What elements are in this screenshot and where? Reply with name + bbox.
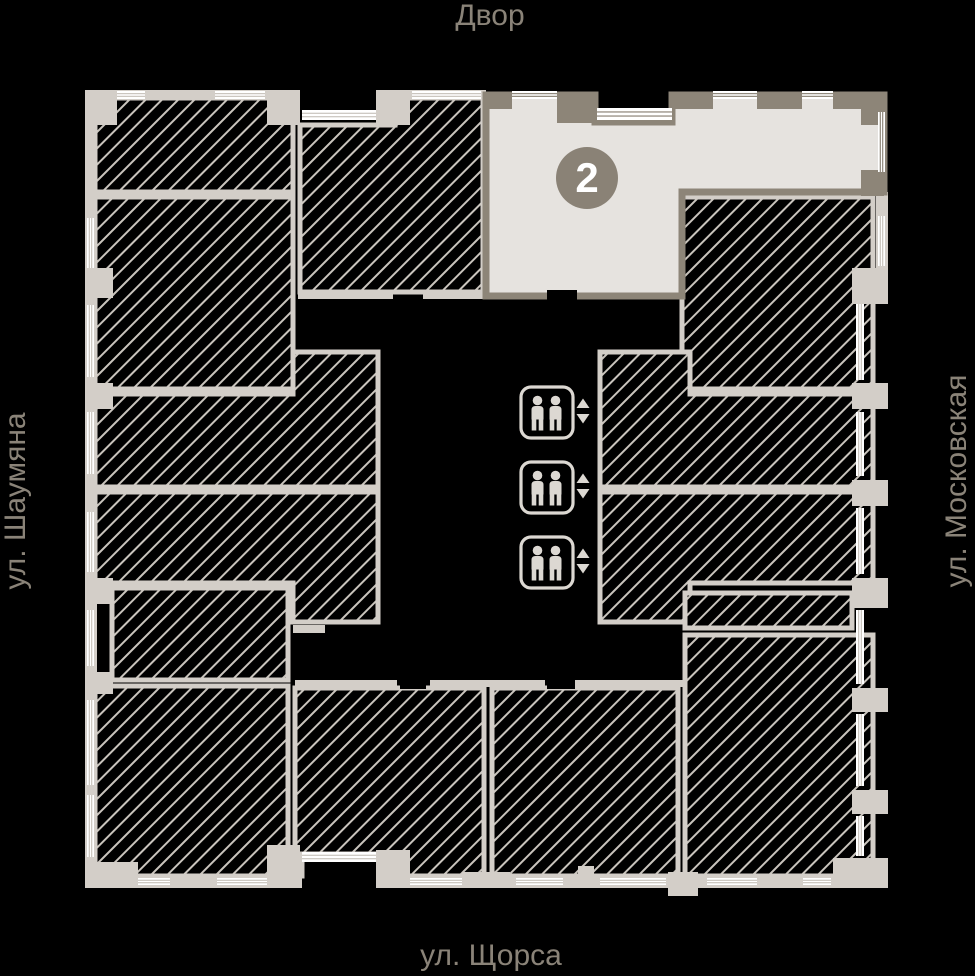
window-mullion [858, 816, 859, 856]
window [87, 218, 94, 268]
window-mullion [215, 96, 265, 97]
wall-pier [85, 90, 117, 125]
floor-plan-page: Двор ул. Шаумяна ул. Московская ул. Щорс… [0, 0, 975, 976]
arrow-down-icon [577, 564, 590, 574]
person-icon-leg [557, 568, 562, 581]
wall-pier [852, 578, 888, 608]
window-mullion [217, 880, 267, 881]
wall-pier [578, 866, 594, 888]
window [87, 305, 94, 377]
window-mullion [89, 512, 90, 572]
window-mullion [91, 795, 92, 857]
wall-pier [833, 858, 888, 888]
window-mullion [802, 93, 833, 94]
window [856, 816, 864, 856]
window-mullion [302, 113, 376, 114]
door-opening [400, 679, 426, 689]
elevator-icon [521, 387, 590, 438]
window [217, 878, 267, 885]
person-icon-head [551, 546, 561, 556]
inner-wall [423, 292, 485, 299]
window-mullion [880, 216, 881, 266]
person-icon-body [550, 481, 562, 495]
apartment-region[interactable] [682, 197, 873, 389]
apartment-region[interactable] [95, 686, 288, 876]
window-mullion [516, 882, 563, 883]
person-icon-body [532, 481, 544, 495]
selected-unit-wall-pier [557, 95, 597, 123]
window-mullion [412, 96, 481, 97]
person-icon-leg [532, 418, 537, 431]
floor-plan [0, 0, 975, 976]
elevator-icon [521, 537, 590, 588]
person-icon-body [550, 406, 562, 420]
door-opening [547, 679, 575, 689]
apartment-region[interactable] [492, 688, 678, 876]
window-mullion [880, 112, 881, 172]
window-mullion [597, 111, 672, 112]
arrow-up-icon [577, 399, 590, 409]
window-mullion [89, 610, 90, 666]
person-icon-leg [539, 568, 544, 581]
selected-unit-wall-pier [757, 95, 802, 109]
window-mullion [858, 412, 859, 476]
elevator-cab-outline [521, 387, 573, 438]
window [856, 412, 864, 476]
inner-wall [430, 680, 545, 687]
window-mullion [215, 93, 265, 94]
inner-wall [295, 680, 397, 687]
person-icon-head [533, 546, 543, 556]
window [512, 91, 557, 99]
elevator-cab-outline [521, 462, 573, 513]
street-label-bottom: ул. Щорса [420, 939, 562, 973]
wall-pier [852, 688, 888, 712]
window [856, 508, 864, 574]
person-icon-leg [539, 493, 544, 506]
arrow-down-icon [577, 414, 590, 424]
window-mullion [138, 882, 170, 883]
selected-unit-wall-pier [672, 95, 713, 109]
window [302, 110, 376, 120]
street-label-right: ул. Московская [940, 375, 974, 588]
window-mullion [803, 880, 831, 881]
inner-wall [575, 680, 687, 687]
window-mullion [861, 816, 862, 856]
window-mullion [89, 795, 90, 857]
window [856, 610, 864, 684]
selected-unit-wall-pier [861, 170, 884, 196]
window-mullion [89, 218, 90, 268]
window-mullion [707, 880, 757, 881]
window [803, 878, 831, 885]
wall-pier [852, 480, 888, 506]
window [878, 112, 885, 172]
person-icon-body [532, 406, 544, 420]
window-mullion [600, 880, 666, 881]
person-icon-head [533, 471, 543, 481]
window [87, 795, 94, 857]
window-mullion [117, 96, 145, 97]
window [713, 91, 757, 99]
window-mullion [861, 714, 862, 786]
selected-unit-door-opening [547, 290, 577, 300]
person-icon-head [551, 396, 561, 406]
window [117, 91, 145, 99]
person-icon-leg [550, 568, 555, 581]
window-mullion [803, 882, 831, 883]
elevator-cab-outline [521, 537, 573, 588]
apartment-region[interactable] [112, 588, 288, 680]
window [410, 878, 462, 885]
selected-unit-badge[interactable]: 2 [556, 147, 618, 209]
window-mullion [412, 93, 481, 94]
selected-unit-wall-pier [486, 95, 512, 109]
window-mullion [91, 700, 92, 785]
wall-pier [376, 90, 410, 125]
wall-pier [267, 90, 300, 125]
window-mullion [512, 93, 557, 94]
person-icon-leg [539, 418, 544, 431]
window-mullion [707, 882, 757, 883]
window [302, 852, 376, 862]
window-mullion [512, 96, 557, 97]
window-mullion [89, 700, 90, 785]
wall-pier [267, 845, 300, 888]
window-mullion [713, 93, 757, 94]
arrow-up-icon [577, 474, 590, 484]
window [87, 412, 94, 474]
window-mullion [858, 508, 859, 574]
person-icon-head [533, 396, 543, 406]
window-mullion [91, 412, 92, 474]
street-label-left: ул. Шаумяна [0, 412, 33, 589]
window-mullion [138, 880, 170, 881]
window [600, 878, 666, 885]
person-icon-leg [550, 418, 555, 431]
window [707, 878, 757, 885]
inner-wall [298, 292, 393, 299]
window-mullion [861, 508, 862, 574]
wall-pier [852, 383, 888, 409]
window-mullion [117, 93, 145, 94]
wall-pier [85, 672, 113, 694]
window-mullion [217, 882, 267, 883]
window-mullion [858, 304, 859, 380]
person-icon-head [551, 471, 561, 481]
wall-pier [852, 268, 888, 304]
wall-pier [780, 874, 802, 888]
window-mullion [597, 115, 672, 116]
window [87, 700, 94, 785]
window-mullion [89, 305, 90, 377]
window-mullion [410, 882, 462, 883]
street-label-top: Двор [455, 0, 524, 33]
window-mullion [302, 858, 376, 859]
window-mullion [302, 116, 376, 117]
apartment-region[interactable] [685, 635, 873, 876]
window-mullion [861, 304, 862, 380]
wall-pier [376, 850, 410, 888]
person-icon-body [550, 556, 562, 570]
window [87, 512, 94, 572]
apartment-region[interactable] [300, 98, 483, 292]
window [597, 108, 672, 120]
window [878, 216, 885, 266]
wall-pier [462, 872, 510, 888]
window-mullion [882, 216, 883, 266]
wall-pier [85, 862, 138, 888]
window-mullion [91, 305, 92, 377]
person-icon-leg [550, 493, 555, 506]
window [412, 91, 481, 99]
window-mullion [91, 610, 92, 666]
window [856, 714, 864, 786]
window-mullion [858, 714, 859, 786]
elevator-icon [521, 462, 590, 513]
window-mullion [410, 880, 462, 881]
window-mullion [861, 610, 862, 684]
window [856, 304, 864, 380]
window-mullion [882, 112, 883, 172]
window-mullion [858, 610, 859, 684]
wall-pier [852, 790, 888, 814]
window [215, 91, 265, 99]
window [87, 610, 94, 666]
wall-pier [85, 268, 113, 298]
apartment-region[interactable] [95, 197, 293, 389]
window-mullion [861, 412, 862, 476]
apartment-region[interactable] [295, 688, 484, 876]
window [138, 878, 170, 885]
arrow-up-icon [577, 549, 590, 559]
window-mullion [302, 855, 376, 856]
person-icon-leg [532, 568, 537, 581]
window-mullion [91, 218, 92, 268]
wall-pier [668, 872, 698, 896]
window [802, 91, 833, 99]
window-mullion [516, 880, 563, 881]
person-icon-leg [557, 493, 562, 506]
arrow-down-icon [577, 489, 590, 499]
window-mullion [91, 512, 92, 572]
wall-pier [85, 578, 113, 604]
apartment-region[interactable] [685, 593, 852, 628]
apartment-region[interactable] [95, 98, 293, 192]
inner-wall [293, 625, 325, 633]
window-mullion [713, 96, 757, 97]
person-icon-body [532, 556, 544, 570]
person-icon-leg [557, 418, 562, 431]
window-mullion [802, 96, 833, 97]
window-mullion [600, 882, 666, 883]
wall-pier [85, 383, 113, 409]
window [516, 878, 563, 885]
window-mullion [89, 412, 90, 474]
person-icon-leg [532, 493, 537, 506]
